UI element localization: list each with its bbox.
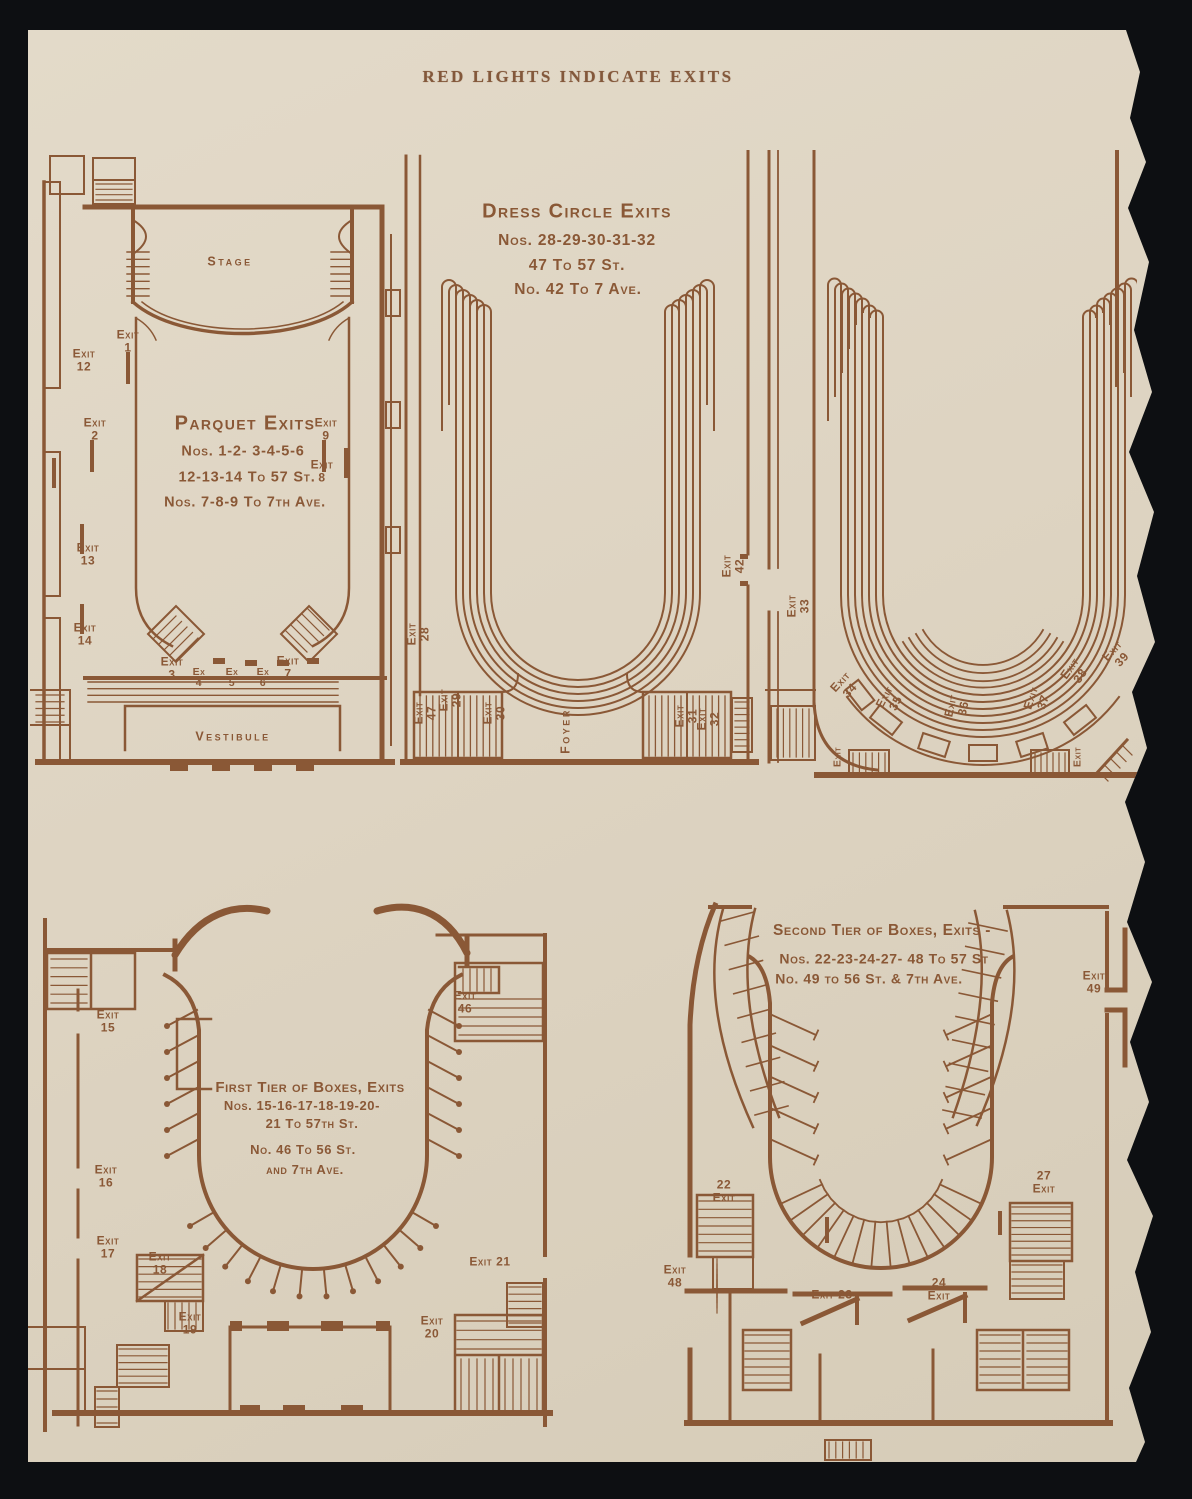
- paper-sheet: RED LIGHTS INDICATE EXITS: [28, 30, 1164, 1462]
- parquet-plan: [30, 150, 405, 800]
- parquet-plan-drawing: [30, 150, 405, 800]
- second-tier-plan-drawing: [655, 895, 1140, 1470]
- dress-circle-plan: [400, 150, 765, 800]
- first-tier-plan-drawing: [25, 895, 555, 1470]
- balcony-plan-drawing: [765, 150, 1137, 800]
- first-tier-plan: [25, 895, 555, 1470]
- dress-circle-plan-drawing: [400, 150, 765, 800]
- page-header-stamp: RED LIGHTS INDICATE EXITS: [422, 67, 733, 87]
- balcony-plan: [765, 150, 1137, 800]
- second-tier-plan: [655, 895, 1140, 1470]
- scanned-page: { "palette": { "ink": "#8a5836", "paper"…: [0, 0, 1192, 1499]
